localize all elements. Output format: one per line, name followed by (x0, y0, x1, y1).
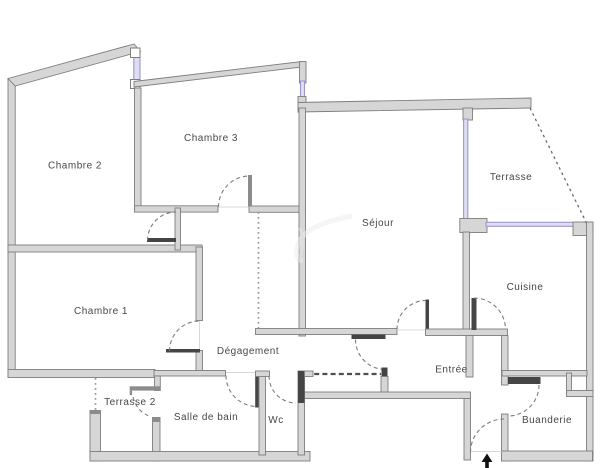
svg-text:Buanderie: Buanderie (522, 415, 572, 426)
svg-text:Entrée: Entrée (435, 365, 467, 376)
svg-text:Salle de bain: Salle de bain (174, 412, 238, 423)
svg-text:Séjour: Séjour (362, 218, 394, 229)
svg-text:Chambre 1: Chambre 1 (74, 306, 128, 317)
svg-text:Chambre 3: Chambre 3 (184, 133, 238, 144)
svg-text:Terrasse 2: Terrasse 2 (104, 397, 156, 408)
svg-text:Terrasse: Terrasse (490, 172, 532, 183)
svg-text:Cuisine: Cuisine (507, 282, 544, 293)
svg-text:Wc: Wc (268, 415, 283, 426)
svg-text:Dégagement: Dégagement (217, 346, 279, 357)
svg-text:Chambre 2: Chambre 2 (48, 161, 102, 172)
